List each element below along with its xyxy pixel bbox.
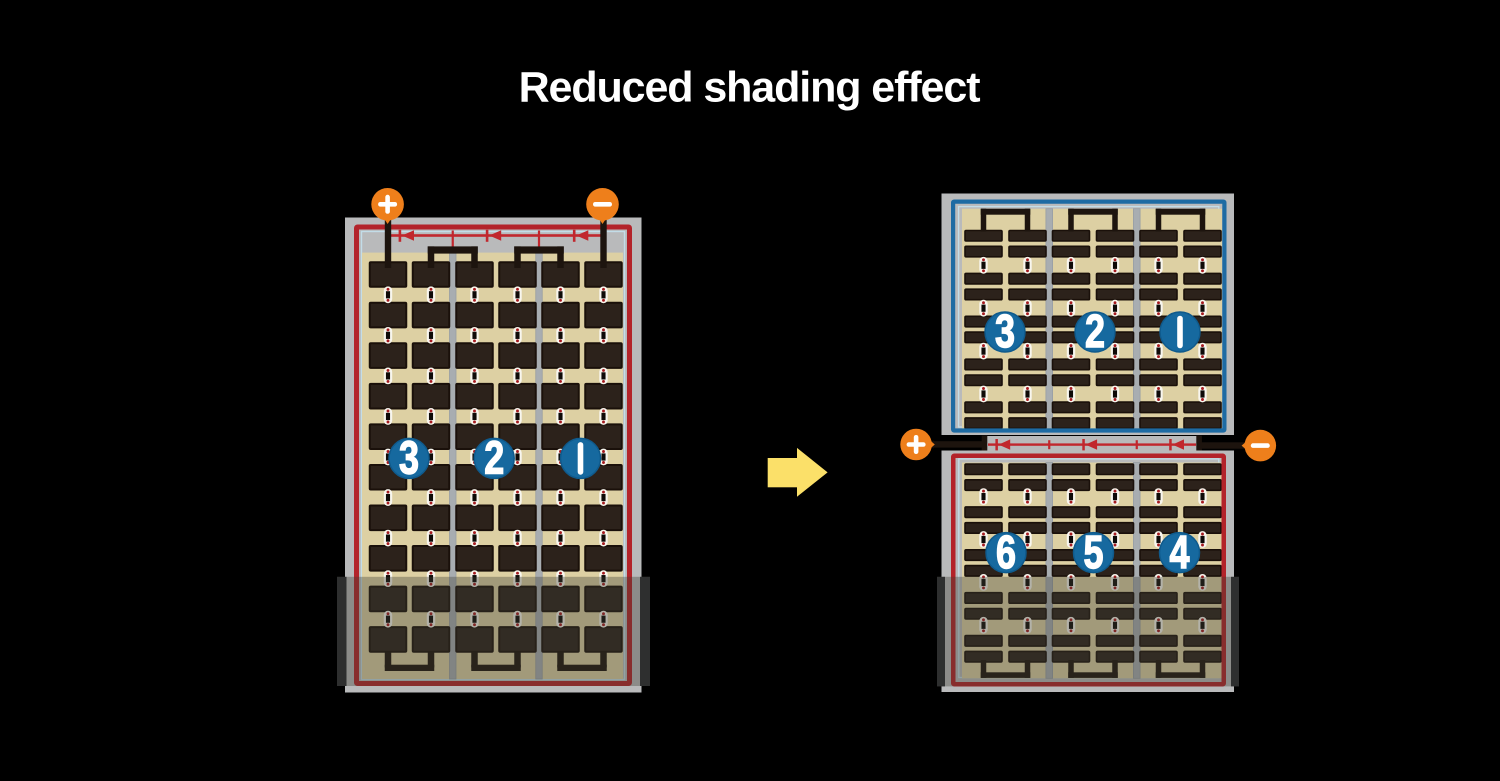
svg-text:Reduced shading effect: Reduced shading effect [519,64,981,112]
svg-text:3: 3 [399,432,419,484]
svg-text:5: 5 [1084,526,1104,578]
svg-text:3: 3 [995,305,1015,357]
svg-text:4: 4 [1170,526,1190,578]
svg-text:2: 2 [1085,305,1105,357]
svg-text:2: 2 [484,432,504,484]
svg-text:6: 6 [996,526,1016,578]
